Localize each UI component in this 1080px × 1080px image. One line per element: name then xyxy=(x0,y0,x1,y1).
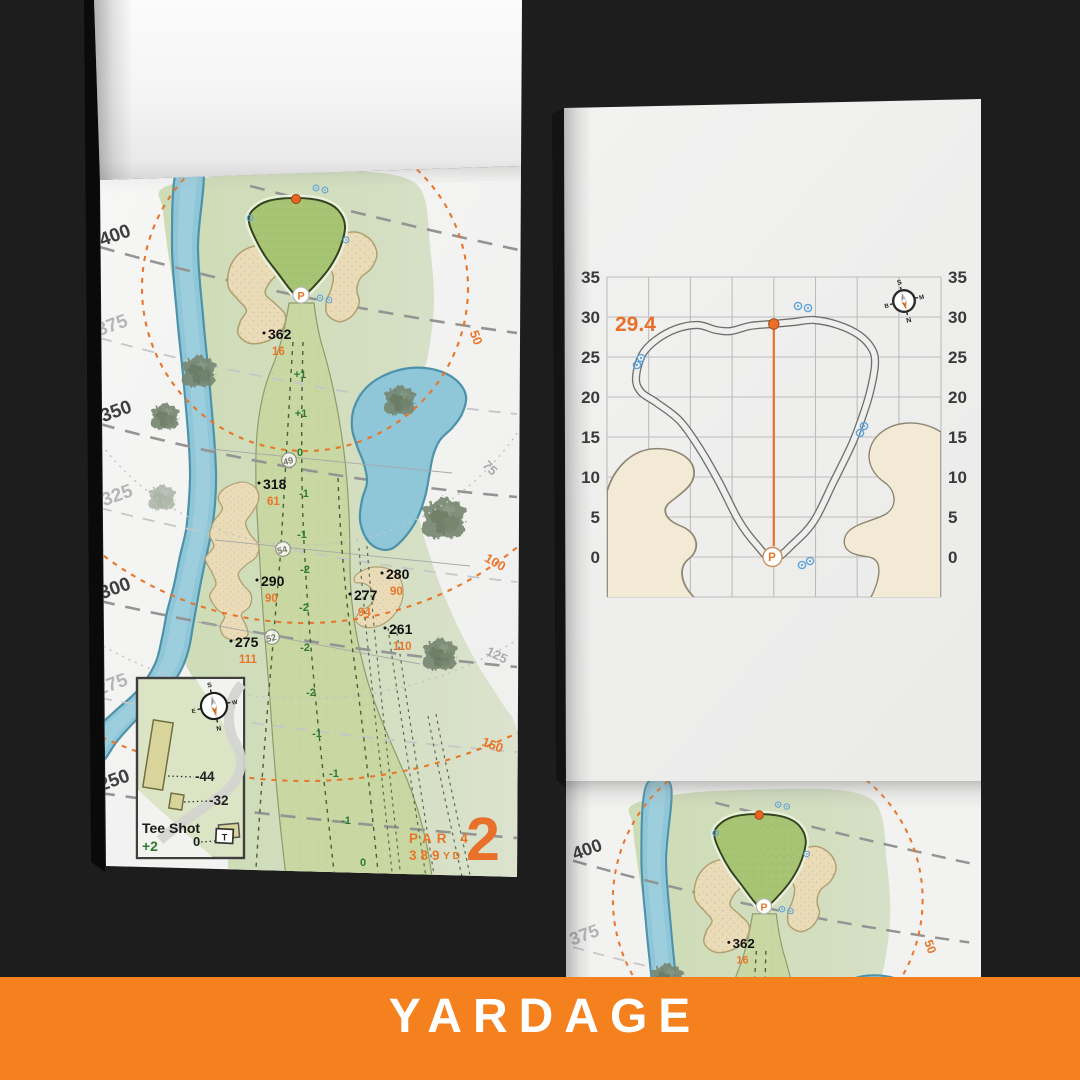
svg-text:-1: -1 xyxy=(299,488,309,500)
svg-text:275: 275 xyxy=(235,634,259,650)
svg-text:25: 25 xyxy=(948,348,967,367)
svg-text:-2: -2 xyxy=(306,687,316,699)
svg-text:362: 362 xyxy=(268,326,292,342)
svg-text:P: P xyxy=(297,291,304,303)
svg-text:15: 15 xyxy=(948,428,967,447)
svg-text:5: 5 xyxy=(591,508,600,527)
svg-text:YARDAGE: YARDAGE xyxy=(389,990,702,1043)
svg-text:20: 20 xyxy=(948,388,967,407)
svg-text:30: 30 xyxy=(581,308,600,327)
svg-text:10: 10 xyxy=(948,468,967,487)
svg-text:29.4: 29.4 xyxy=(615,313,656,336)
svg-text:-2: -2 xyxy=(299,602,309,614)
svg-text:0: 0 xyxy=(591,548,600,567)
svg-text:280: 280 xyxy=(386,566,410,582)
svg-text:-44: -44 xyxy=(195,769,215,784)
svg-text:111: 111 xyxy=(239,654,258,666)
svg-text:25: 25 xyxy=(581,348,600,367)
svg-text:0: 0 xyxy=(193,834,200,849)
svg-text:10: 10 xyxy=(581,468,600,487)
svg-text:T: T xyxy=(222,833,228,843)
svg-text:-1: -1 xyxy=(297,529,307,541)
svg-text:2: 2 xyxy=(466,805,500,873)
svg-text:+2: +2 xyxy=(142,838,158,854)
svg-text:0: 0 xyxy=(360,857,366,869)
svg-text:-1: -1 xyxy=(341,815,351,827)
svg-text:5: 5 xyxy=(948,508,957,527)
svg-text:90: 90 xyxy=(390,586,403,598)
svg-text:35: 35 xyxy=(948,268,967,287)
svg-text:261: 261 xyxy=(389,621,413,637)
svg-text:15: 15 xyxy=(581,428,600,447)
svg-text:389: 389 xyxy=(409,848,444,863)
svg-text:+1: +1 xyxy=(294,369,307,381)
svg-text:YD: YD xyxy=(443,850,463,862)
svg-text:+1: +1 xyxy=(295,408,308,420)
svg-text:0: 0 xyxy=(297,447,303,459)
svg-text:0: 0 xyxy=(948,548,957,567)
svg-text:P: P xyxy=(768,552,776,564)
svg-text:-1: -1 xyxy=(312,728,322,740)
svg-text:-2: -2 xyxy=(300,642,310,654)
svg-text:318: 318 xyxy=(263,476,287,492)
svg-text:30: 30 xyxy=(948,308,967,327)
svg-text:-32: -32 xyxy=(209,793,229,808)
svg-text:110: 110 xyxy=(393,641,412,653)
svg-text:PAR 4: PAR 4 xyxy=(409,831,473,846)
svg-text:35: 35 xyxy=(581,268,600,287)
svg-text:90: 90 xyxy=(265,593,278,605)
svg-text:-1: -1 xyxy=(329,768,339,780)
svg-text:290: 290 xyxy=(261,573,285,589)
svg-text:20: 20 xyxy=(581,388,600,407)
svg-text:-2: -2 xyxy=(300,564,310,576)
svg-text:94: 94 xyxy=(358,607,371,619)
svg-text:61: 61 xyxy=(267,496,280,508)
svg-text:16: 16 xyxy=(272,346,285,358)
svg-text:Tee Shot: Tee Shot xyxy=(142,820,200,836)
svg-text:277: 277 xyxy=(354,587,378,603)
